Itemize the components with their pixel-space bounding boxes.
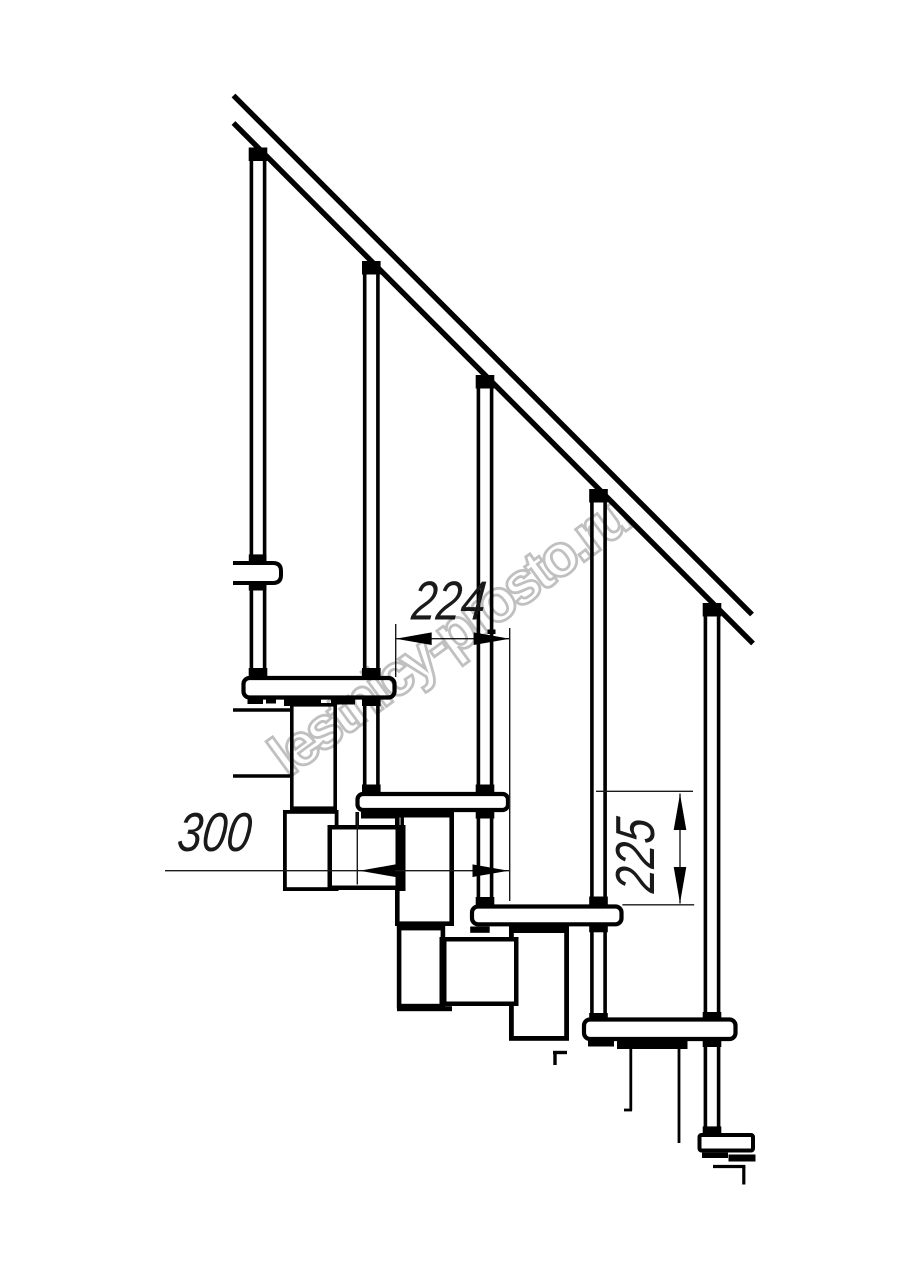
svg-text:225: 225 [604,814,666,895]
svg-text:300: 300 [175,801,255,863]
